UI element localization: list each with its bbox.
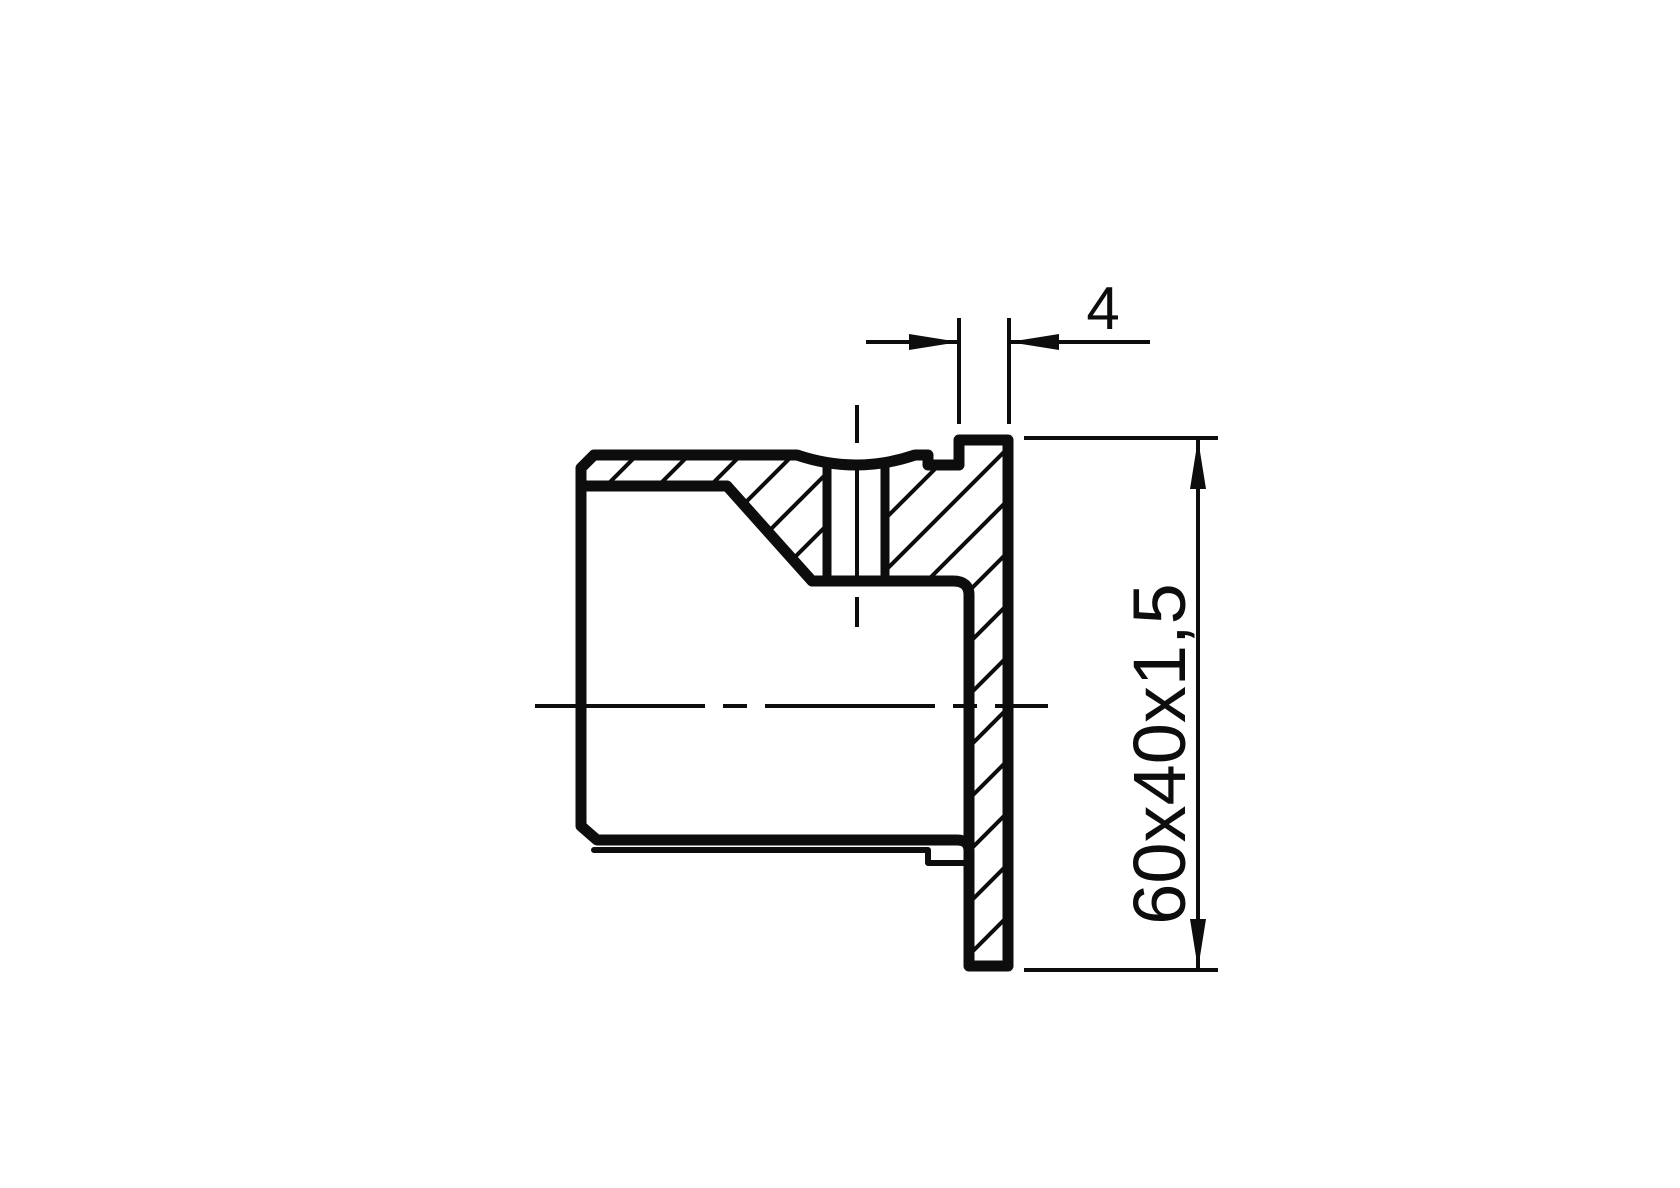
drawing-canvas: 4 60x40x1,5	[0, 0, 1680, 1188]
bottom-wall-shadow-line	[594, 850, 963, 863]
dimension-tube-size: 60x40x1,5	[1024, 438, 1218, 970]
flange-thickness-label: 4	[1086, 275, 1119, 342]
arrow-up-icon	[1190, 439, 1206, 489]
section-hatching	[594, 443, 1003, 962]
tube-size-label: 60x40x1,5	[1118, 583, 1201, 925]
hatch-right-block	[886, 459, 961, 578]
dimension-flange-thickness: 4	[866, 275, 1150, 424]
arrow-right-icon	[909, 334, 959, 350]
arrow-left-icon	[1009, 334, 1059, 350]
technical-drawing: 4 60x40x1,5	[0, 0, 1680, 1188]
arrow-down-icon	[1190, 919, 1206, 969]
